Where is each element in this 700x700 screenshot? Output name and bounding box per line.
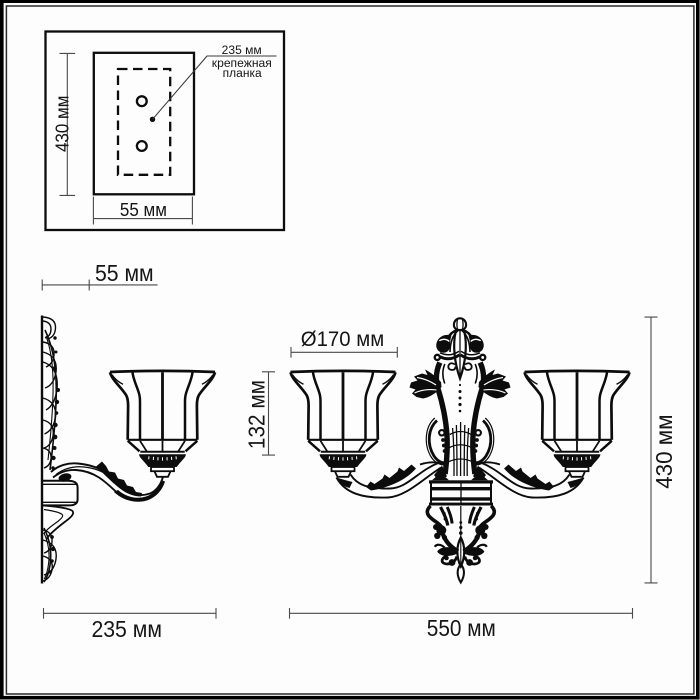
- svg-text:430 мм: 430 мм: [651, 414, 677, 488]
- svg-text:235 мм: 235 мм: [91, 616, 162, 642]
- svg-text:Ø170 мм: Ø170 мм: [301, 326, 384, 351]
- svg-text:235 мм: 235 мм: [222, 45, 262, 57]
- svg-text:55 мм: 55 мм: [120, 199, 167, 220]
- svg-text:132 мм: 132 мм: [243, 380, 269, 449]
- svg-text:430 мм: 430 мм: [52, 96, 73, 153]
- svg-text:планка: планка: [223, 68, 263, 80]
- svg-text:550 мм: 550 мм: [427, 615, 496, 641]
- svg-text:55 мм: 55 мм: [95, 260, 154, 286]
